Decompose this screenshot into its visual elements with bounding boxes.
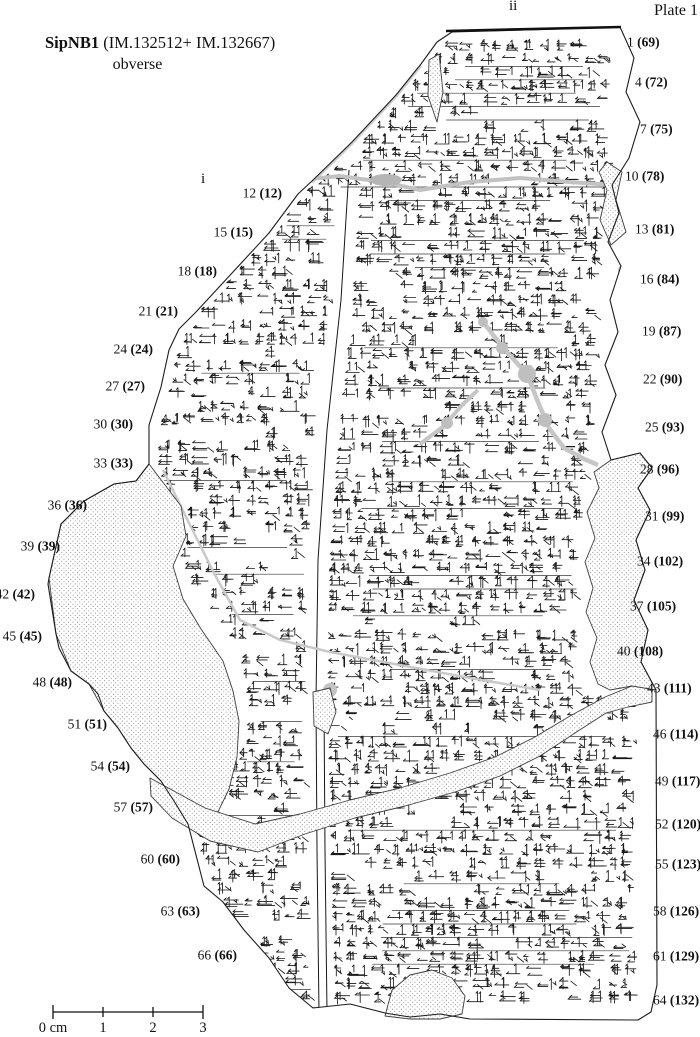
line-number-label: 13 (81) [635, 222, 674, 236]
line-number-label: 51 (51) [68, 717, 107, 731]
line-number-label: 28 (96) [640, 462, 679, 476]
scale-bar-label: 0 cm [39, 1020, 68, 1037]
line-number-label: 12 (12) [243, 186, 282, 200]
tablet-siglum: SipNB1 [45, 33, 99, 52]
line-number-label: 34 (102) [637, 554, 683, 568]
line-number-label: 66 (66) [198, 948, 237, 962]
scale-bar [53, 1005, 203, 1019]
line-number-label: 40 (108) [617, 644, 663, 658]
line-number-label: 48 (48) [33, 675, 72, 689]
line-number-label: 42 (42) [0, 587, 35, 601]
line-number-label: 57 (57) [114, 800, 153, 814]
line-number-label: 43 (111) [647, 681, 692, 695]
line-number-label: 55 (123) [655, 857, 700, 871]
line-number-label: 21 (21) [139, 304, 178, 318]
line-number-label: 4 (72) [635, 75, 668, 89]
line-number-label: 19 (87) [642, 324, 681, 338]
line-number-label: 18 (18) [178, 264, 217, 278]
line-number-label: 63 (63) [161, 904, 200, 918]
line-number-label: 37 (105) [630, 599, 676, 613]
line-number-label: 36 (36) [48, 498, 87, 512]
line-number-label: 24 (24) [114, 342, 153, 356]
page-title: SipNB1 (IM.132512+ IM.132667) [45, 33, 275, 53]
plate-label: Plate 1 [654, 2, 698, 20]
line-number-label: 10 (78) [625, 169, 664, 183]
museum-numbers: (IM.132512+ IM.132667) [99, 33, 275, 52]
line-number-label: 1 (69) [627, 35, 660, 49]
line-number-label: 54 (54) [91, 759, 130, 773]
line-number-label: 52 (120) [655, 817, 700, 831]
line-number-label: 46 (114) [653, 727, 698, 741]
line-number-label: 15 (15) [214, 225, 253, 239]
column-marker-ii: ii [509, 0, 517, 15]
plate-page: SipNB1 (IM.132512+ IM.132667) obverse Pl… [0, 0, 700, 1037]
line-number-label: 49 (117) [655, 774, 700, 788]
line-number-label: 39 (39) [21, 539, 60, 553]
line-number-label: 45 (45) [3, 629, 42, 643]
line-number-label: 31 (99) [645, 509, 684, 523]
scale-bar-label: 2 [149, 1020, 156, 1037]
line-number-label: 22 (90) [643, 372, 682, 386]
scale-bar-label: 1 [99, 1020, 106, 1037]
line-number-label: 30 (30) [94, 417, 133, 431]
line-number-label: 7 (75) [640, 122, 673, 136]
line-number-label: 25 (93) [645, 420, 684, 434]
line-number-label: 16 (84) [640, 272, 679, 286]
column-marker-i: i [201, 171, 205, 188]
line-number-label: 33 (33) [94, 456, 133, 470]
line-number-label: 61 (129) [653, 949, 699, 963]
side-label: obverse [45, 56, 230, 74]
tablet-drawing [0, 0, 700, 1037]
line-number-label: 64 (132) [653, 993, 699, 1007]
line-number-label: 60 (60) [141, 852, 180, 866]
scale-bar-label: 3 [199, 1020, 206, 1037]
line-number-label: 27 (27) [106, 379, 145, 393]
line-number-label: 58 (126) [653, 904, 699, 918]
